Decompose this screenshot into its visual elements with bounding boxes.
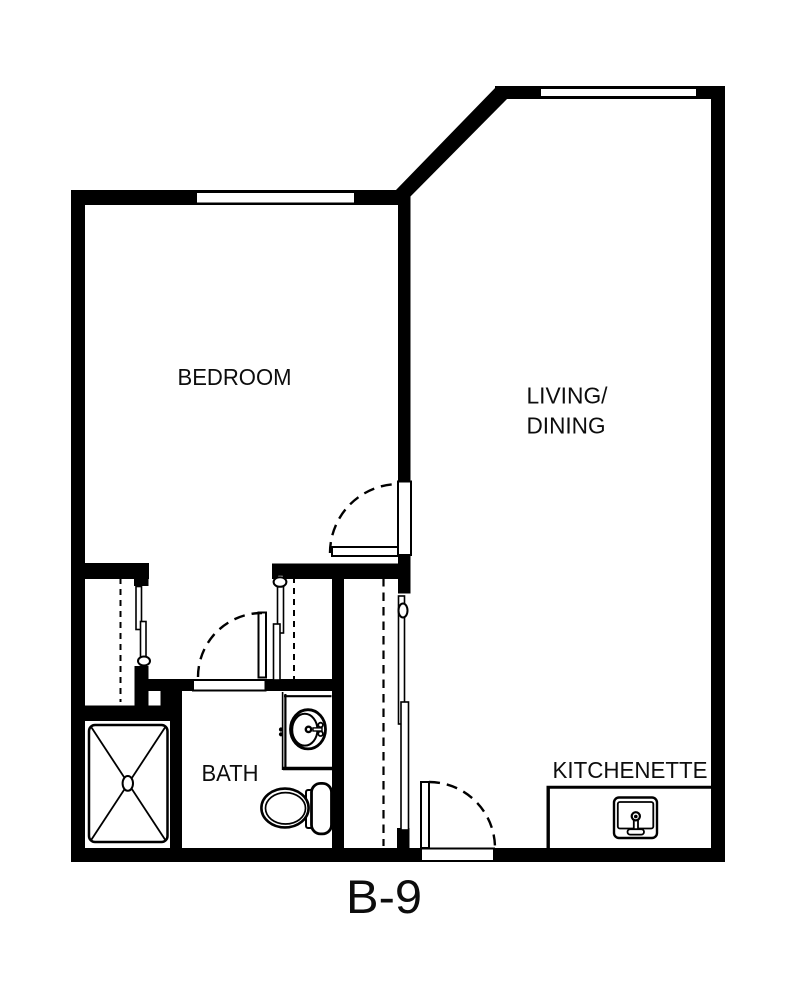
- svg-text:LIVING/: LIVING/: [527, 383, 609, 409]
- svg-text:B-9: B-9: [346, 870, 422, 923]
- svg-text:BEDROOM: BEDROOM: [178, 364, 292, 390]
- svg-text:DINING: DINING: [527, 413, 606, 439]
- svg-text:BATH: BATH: [202, 760, 259, 786]
- svg-text:KITCHENETTE: KITCHENETTE: [553, 757, 708, 783]
